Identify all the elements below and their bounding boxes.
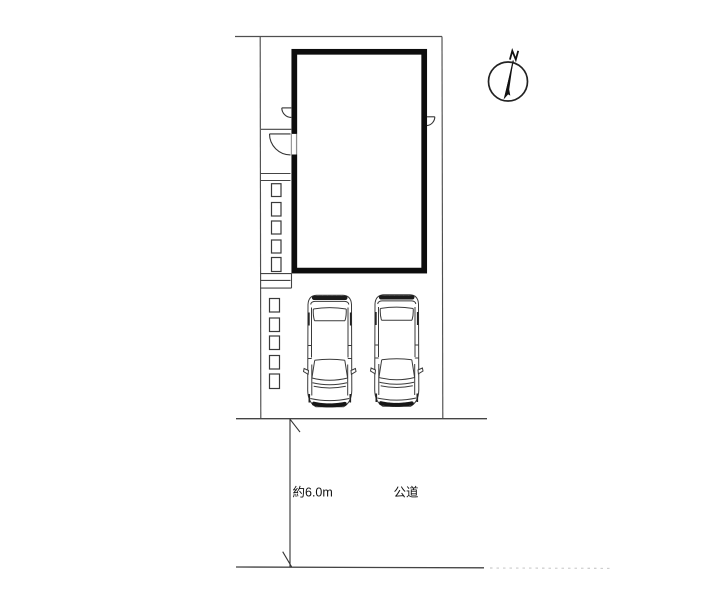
svg-text:公道: 公道	[394, 486, 420, 500]
svg-text:約6.0m: 約6.0m	[293, 485, 333, 500]
